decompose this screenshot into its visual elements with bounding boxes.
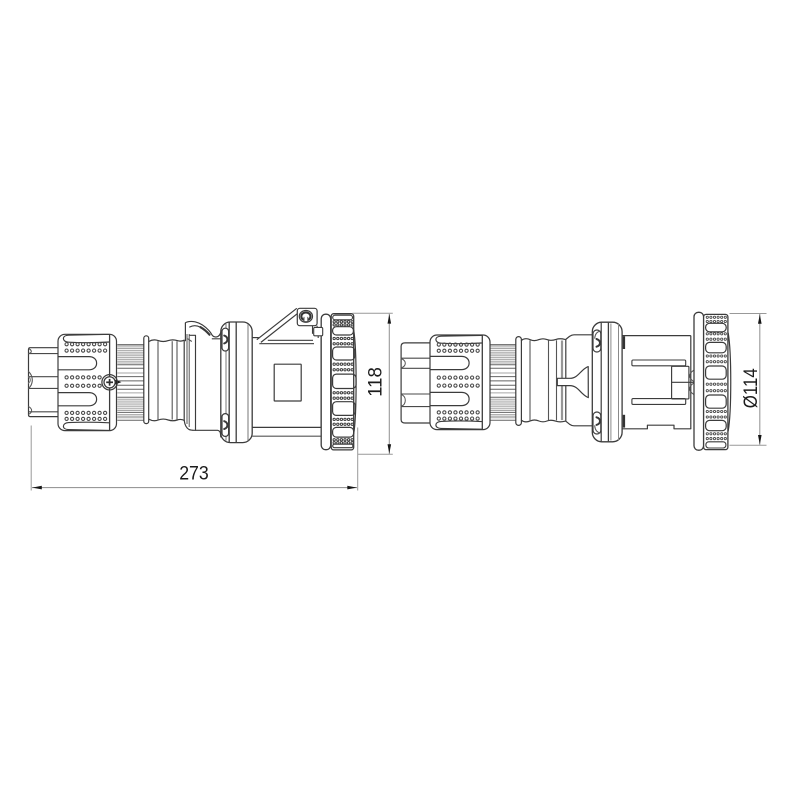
svg-text:Ø114: Ø114 [741,368,762,408]
svg-text:273: 273 [179,463,209,484]
svg-text:118: 118 [366,367,387,397]
